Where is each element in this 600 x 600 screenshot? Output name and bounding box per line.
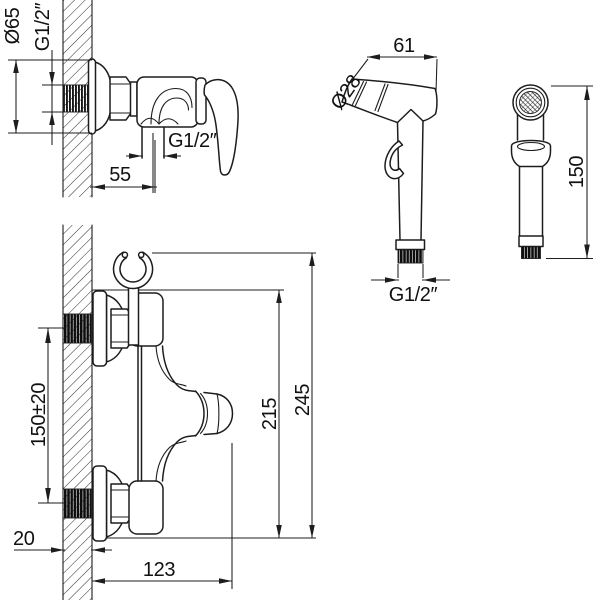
dim-body-height: 215 — [259, 398, 281, 430]
body-hub-bottom — [129, 481, 163, 534]
escutcheon-plate — [89, 59, 96, 134]
dim-flange-diameter: Ø65 — [2, 7, 24, 44]
hook-stem — [129, 287, 139, 345]
sprayer-holder-hook — [114, 252, 153, 288]
dimensions-mixer-front: 150±20 20 215 245 123 — [13, 253, 315, 589]
dim-wall-thickness: 20 — [13, 528, 35, 550]
hanging-collar — [512, 141, 551, 167]
spacer-ring — [131, 82, 138, 116]
body-inner-top — [156, 346, 186, 386]
hook-tip — [139, 252, 144, 257]
escutcheon-bottom — [93, 466, 132, 541]
dim-head-length: 61 — [393, 35, 415, 57]
dim-inlet-spacing: 150±20 — [28, 383, 50, 447]
handle-lever — [204, 80, 238, 175]
wall-inlet-thread-top — [63, 314, 91, 343]
connector-thread — [522, 247, 541, 259]
body-front-edge — [138, 346, 142, 481]
handle-knob — [196, 391, 233, 436]
sprayer-body — [520, 167, 543, 237]
dim-outlet-thread: G1/2″ — [168, 130, 217, 152]
dim-sprayer-height: 150 — [566, 156, 588, 188]
wall-hatch — [63, 225, 92, 600]
dimensions-sprayer-front: 150 — [546, 86, 593, 259]
dim-connector-thread: G1/2″ — [389, 284, 438, 306]
connector-collar — [396, 240, 425, 250]
connector-thread — [398, 250, 423, 264]
sprayer-side-view: 61 Ø28 G1/2″ — [327, 35, 450, 306]
hook-tip — [122, 252, 127, 257]
dim-total-height: 245 — [292, 384, 314, 416]
dim-spout-reach: 123 — [143, 559, 175, 581]
mixer-side-view: Ø65 G1/2″ G1/2″ 55 — [2, 0, 238, 197]
escutcheon-top — [93, 291, 132, 366]
connector-collar — [519, 236, 543, 247]
dim-outlet-offset: 55 — [109, 164, 131, 186]
technical-drawing: Ø65 G1/2″ G1/2″ 55 61 Ø28 — [0, 0, 600, 600]
sprayer-front-view: 150 — [512, 85, 594, 259]
sprayer-trigger — [385, 141, 404, 179]
wall-inlet-thread-bottom — [63, 489, 91, 518]
inlet-thread — [63, 85, 88, 112]
sprayer-grip — [398, 121, 424, 240]
mixer-front-view: 150±20 20 215 245 123 — [13, 225, 316, 600]
body-inner-bottom — [156, 441, 186, 481]
spray-face — [520, 92, 542, 114]
dim-inlet-thread: G1/2″ — [32, 2, 54, 51]
